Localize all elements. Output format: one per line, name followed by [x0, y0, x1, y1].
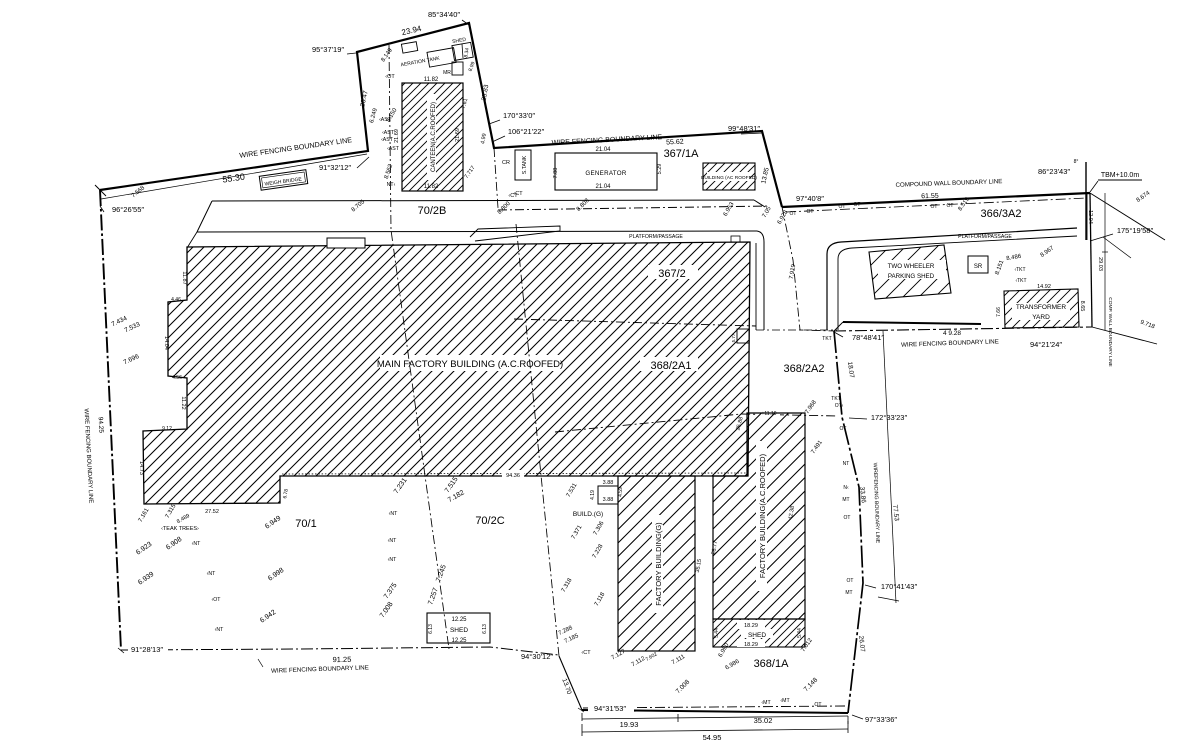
- svg-text:CANTEEN(A.C.ROOFED): CANTEEN(A.C.ROOFED): [431, 102, 437, 172]
- svg-text:11.82: 11.82: [424, 77, 439, 83]
- svg-text:99°48'31″: 99°48'31″: [728, 124, 760, 133]
- svg-text:70/1: 70/1: [295, 518, 316, 530]
- svg-text:96°26'55″: 96°26'55″: [112, 205, 144, 214]
- svg-text:18.29: 18.29: [744, 623, 758, 629]
- svg-text:14.92: 14.92: [1037, 284, 1051, 290]
- svg-text:172°33'23″: 172°33'23″: [871, 413, 908, 422]
- svg-text:12.04: 12.04: [1087, 210, 1093, 224]
- svg-text:OT: OT: [931, 204, 938, 210]
- svg-text:‹AST: ‹AST: [381, 137, 394, 143]
- svg-text:OT‹: OT‹: [835, 403, 844, 409]
- svg-text:‹TKT: ‹TKT: [1014, 267, 1025, 273]
- svg-text:175°19'58″: 175°19'58″: [1117, 226, 1154, 235]
- svg-text:FACTORY BUILDING(A.C.ROOFED): FACTORY BUILDING(A.C.ROOFED): [758, 453, 767, 578]
- svg-text:91°32'12″: 91°32'12″: [319, 163, 351, 172]
- svg-text:170°33'0″: 170°33'0″: [503, 111, 535, 120]
- svg-text:SHED: SHED: [748, 632, 766, 639]
- svg-text:COMP. WALL BOUNDARY LINE: COMP. WALL BOUNDARY LINE: [1107, 297, 1113, 367]
- svg-text:5.44: 5.44: [797, 628, 803, 638]
- svg-text:95°37'19″: 95°37'19″: [312, 45, 344, 54]
- svg-text:7.88: 7.88: [553, 168, 559, 179]
- svg-text:CR: CR: [502, 160, 510, 166]
- svg-text:‹OT: ‹OT: [385, 74, 395, 80]
- svg-text:94.25: 94.25: [97, 417, 105, 434]
- svg-text:SHED: SHED: [450, 627, 468, 634]
- svg-text:11.82: 11.82: [424, 184, 439, 190]
- svg-text:OT: OT: [854, 202, 861, 208]
- svg-text:106°21'22″: 106°21'22″: [508, 127, 545, 136]
- svg-text:91.25: 91.25: [332, 655, 351, 664]
- svg-text:21.04: 21.04: [595, 147, 611, 153]
- svg-text:94°30'12″: 94°30'12″: [521, 652, 553, 661]
- svg-text:4.46: 4.46: [171, 297, 181, 303]
- svg-text:SR: SR: [974, 264, 983, 270]
- svg-text:368/2A2: 368/2A2: [784, 363, 825, 375]
- svg-text:OT: OT: [839, 204, 846, 210]
- svg-text:18.29: 18.29: [744, 642, 758, 648]
- svg-text:91°28'13″: 91°28'13″: [131, 645, 163, 654]
- svg-text:‹AST: ‹AST: [387, 146, 400, 152]
- svg-text:170°41'43″: 170°41'43″: [881, 582, 918, 591]
- svg-text:8°: 8°: [1074, 159, 1079, 165]
- svg-text:PARKING SHED: PARKING SHED: [888, 273, 935, 280]
- svg-text:35.02: 35.02: [754, 716, 773, 725]
- svg-text:6.13: 6.13: [428, 624, 434, 634]
- svg-text:‹NT: ‹NT: [388, 538, 397, 544]
- svg-text:9.12: 9.12: [162, 426, 172, 432]
- svg-text:5.29: 5.29: [657, 164, 663, 175]
- svg-text:‹CT: ‹CT: [581, 650, 591, 656]
- svg-text:‹NT: ‹NT: [192, 541, 201, 547]
- svg-text:4.56: 4.56: [172, 375, 182, 381]
- svg-text:5.77: 5.77: [731, 333, 736, 342]
- svg-text:NT‹: NT‹: [387, 182, 396, 188]
- svg-text:YARD: YARD: [1032, 314, 1050, 321]
- svg-text:86°23'43″: 86°23'43″: [1038, 167, 1070, 176]
- svg-text:12.25: 12.25: [451, 617, 467, 623]
- svg-text:14.73: 14.73: [138, 461, 144, 475]
- svg-text:‹NT: ‹NT: [207, 571, 216, 577]
- svg-text:BUILDING (AC ROOFED): BUILDING (AC ROOFED): [701, 175, 757, 181]
- svg-text:55.62: 55.62: [666, 139, 684, 147]
- svg-text:94°21'24″: 94°21'24″: [1030, 340, 1062, 349]
- svg-text:70/2C: 70/2C: [475, 515, 504, 527]
- svg-text:MT: MT: [842, 497, 849, 503]
- svg-text:54.95: 54.95: [703, 733, 722, 742]
- svg-text:TKT: TKT: [831, 396, 840, 402]
- svg-text:6.13: 6.13: [482, 624, 488, 634]
- svg-text:97°33'36″: 97°33'36″: [865, 715, 897, 724]
- svg-text:366/3A2: 366/3A2: [981, 208, 1022, 220]
- svg-text:7.66: 7.66: [996, 307, 1002, 317]
- svg-text:21.04: 21.04: [595, 184, 611, 190]
- svg-text:94.36: 94.36: [506, 473, 520, 479]
- svg-text:PLATFORM/PASSAGE: PLATFORM/PASSAGE: [629, 234, 683, 240]
- svg-text:11.87: 11.87: [181, 271, 187, 284]
- svg-text:368/2A1: 368/2A1: [651, 360, 692, 372]
- svg-text:‹CT: ‹CT: [513, 191, 523, 197]
- svg-text:‹NT: ‹NT: [389, 511, 398, 517]
- svg-text:8.65: 8.65: [1079, 301, 1085, 312]
- svg-text:OT: OT: [790, 211, 797, 217]
- svg-text:BUILD.(G): BUILD.(G): [573, 511, 603, 518]
- svg-text:29.03: 29.03: [1097, 257, 1103, 271]
- svg-text:4.59: 4.59: [618, 487, 624, 497]
- svg-text:OT: OT: [847, 578, 854, 584]
- svg-text:MR: MR: [443, 70, 451, 76]
- svg-text:85°34'40″: 85°34'40″: [428, 10, 460, 19]
- svg-text:61.55: 61.55: [921, 193, 939, 201]
- svg-text:‹NT: ‹NT: [215, 627, 224, 633]
- svg-text:GENERATOR: GENERATOR: [585, 170, 627, 177]
- svg-text:14.04: 14.04: [163, 336, 169, 350]
- svg-text:‹MT: ‹MT: [761, 700, 771, 706]
- svg-text:19.93: 19.93: [620, 720, 639, 729]
- svg-text:TBM+10.0m: TBM+10.0m: [1101, 172, 1139, 179]
- svg-text:OT: OT: [807, 209, 814, 215]
- svg-text:MT: MT: [845, 590, 852, 596]
- svg-text:3.88: 3.88: [603, 480, 614, 486]
- svg-text:‹NT: ‹NT: [388, 557, 397, 563]
- svg-text:TWO WHEELER: TWO WHEELER: [888, 263, 935, 270]
- svg-text:368/1A: 368/1A: [754, 658, 790, 670]
- svg-text:OT: OT: [947, 203, 954, 209]
- svg-text:4.19: 4.19: [590, 490, 596, 500]
- svg-text:‹TEAK TREES›: ‹TEAK TREES›: [161, 526, 199, 532]
- svg-text:11.22: 11.22: [180, 396, 186, 409]
- svg-text:78°48'41″: 78°48'41″: [852, 333, 884, 342]
- svg-text:MAIN FACTORY BUILDING (A.C.ROO: MAIN FACTORY BUILDING (A.C.ROOFED): [377, 359, 563, 370]
- svg-text:97°40'8″: 97°40'8″: [796, 194, 824, 203]
- svg-text:12.25: 12.25: [451, 638, 467, 644]
- svg-text:OT: OT: [814, 702, 822, 708]
- svg-text:N‹: N‹: [843, 485, 849, 491]
- svg-text:94°31'53″: 94°31'53″: [594, 704, 626, 713]
- svg-text:NT: NT: [843, 461, 850, 467]
- svg-text:5.44: 5.44: [714, 628, 720, 638]
- svg-text:OT: OT: [840, 426, 847, 432]
- svg-text:3.88: 3.88: [603, 497, 614, 503]
- svg-text:TKT: TKT: [822, 336, 831, 342]
- svg-text:‹MT: ‹MT: [780, 698, 790, 704]
- svg-text:TRANSFORMER: TRANSFORMER: [1016, 304, 1067, 311]
- svg-text:367/2: 367/2: [658, 268, 686, 280]
- svg-text:4 9.28: 4 9.28: [943, 330, 961, 337]
- svg-text:‹AST: ‹AST: [382, 130, 395, 136]
- svg-text:21.69: 21.69: [394, 129, 400, 143]
- svg-text:‹TKT: ‹TKT: [1015, 278, 1026, 284]
- svg-text:‹OT: ‹OT: [212, 597, 222, 603]
- svg-text:367/1A: 367/1A: [664, 148, 700, 160]
- svg-text:70/2B: 70/2B: [418, 205, 447, 217]
- svg-text:OT: OT: [844, 515, 851, 521]
- svg-text:27.52: 27.52: [205, 509, 219, 515]
- svg-text:‹AST: ‹AST: [379, 117, 392, 123]
- svg-text:S.TANK: S.TANK: [522, 155, 528, 174]
- svg-text:FACTORY BUILDING(G): FACTORY BUILDING(G): [654, 522, 663, 606]
- svg-text:21.69: 21.69: [455, 128, 461, 142]
